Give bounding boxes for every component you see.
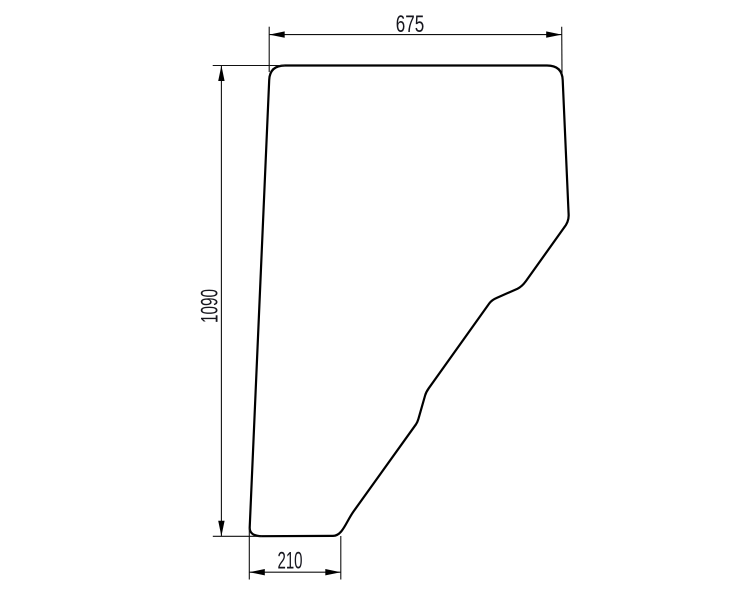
svg-text:210: 210	[278, 548, 303, 575]
svg-text:675: 675	[396, 11, 425, 38]
svg-text:1090: 1090	[197, 289, 224, 323]
